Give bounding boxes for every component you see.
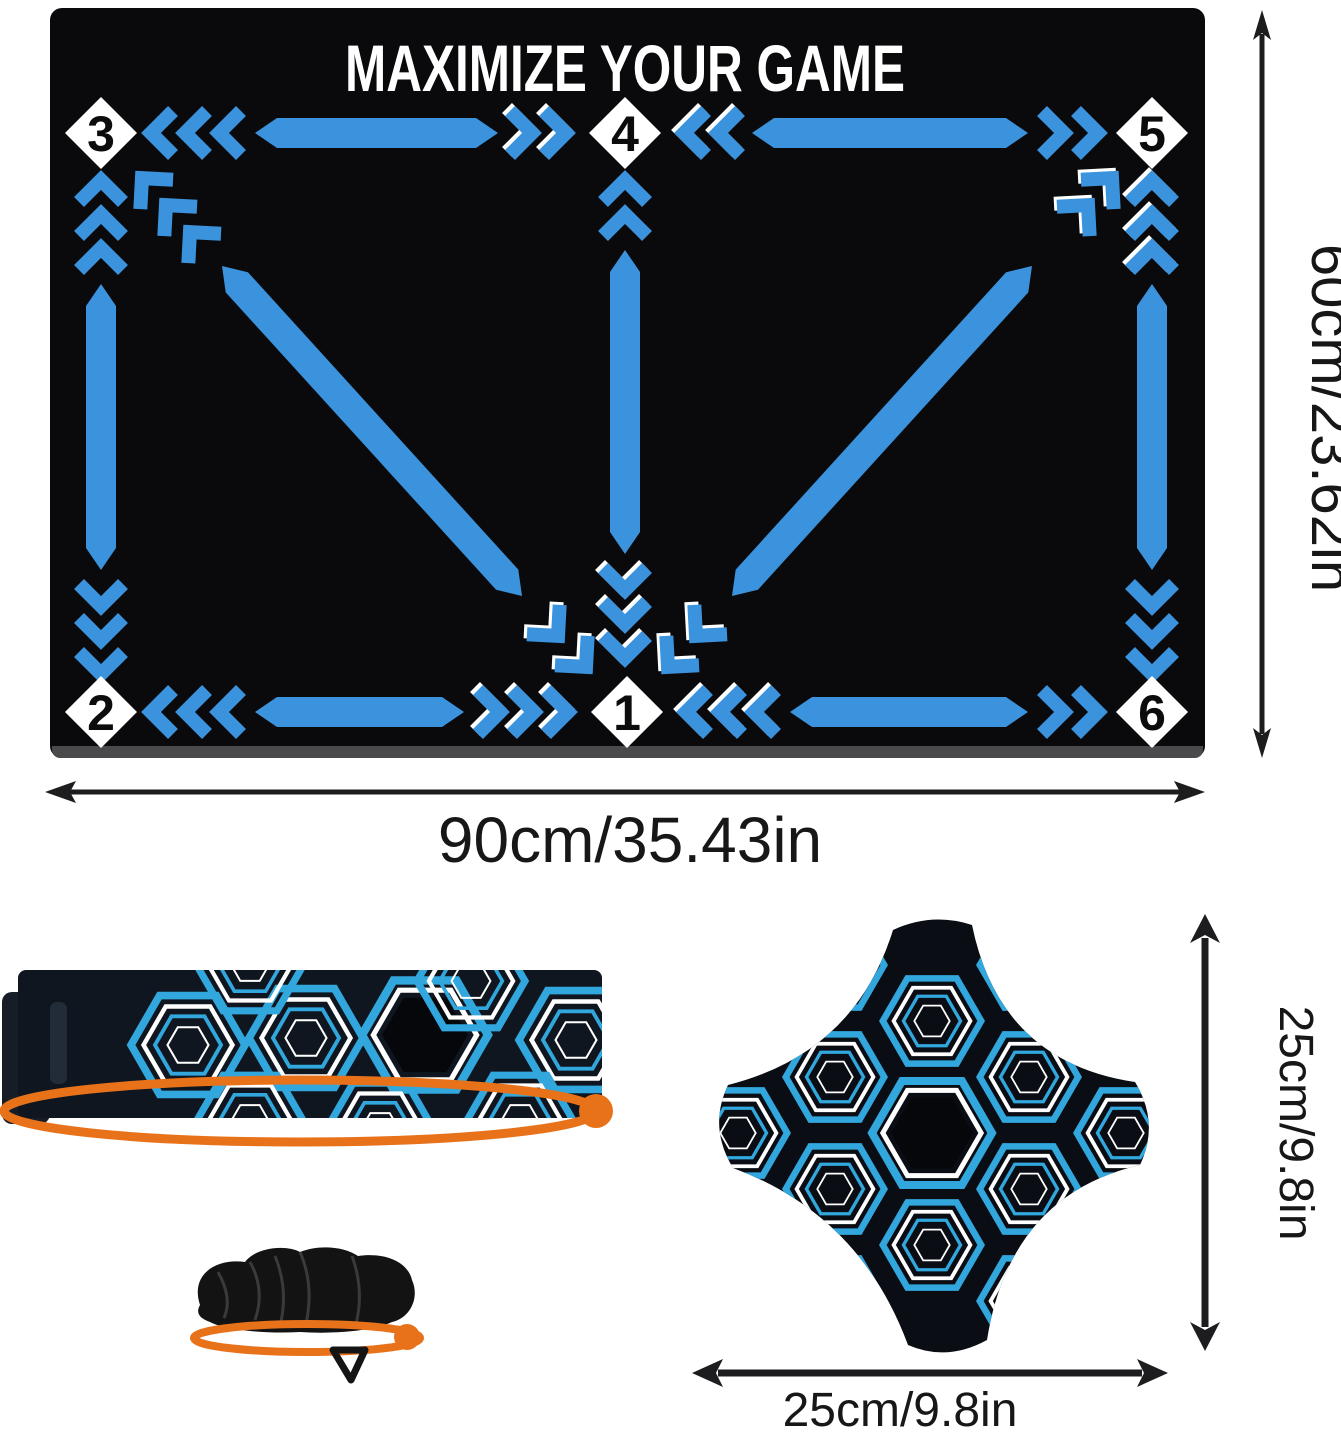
waist-belt-photo	[2, 917, 633, 1177]
station-number-4: 4	[611, 106, 639, 162]
strap-highlight-dot	[394, 1324, 420, 1350]
mat-height-dimension: 60cm/23.62in	[1253, 10, 1341, 758]
pad-width-dimension: 25cm/9.8in	[692, 1359, 1168, 1433]
kick-pad-photo	[689, 920, 1175, 1353]
mat-title: MAXIMIZE YOUR GAME	[345, 31, 905, 105]
rolled-strap-photo	[194, 1247, 420, 1380]
station-number-1: 1	[613, 685, 641, 741]
belt-buckle-slot	[50, 1002, 67, 1084]
pad-height-dimension: 25cm/9.8in	[1190, 914, 1322, 1351]
station-number-6: 6	[1138, 685, 1166, 741]
training-mat-graphic: MAXIMIZE YOUR GAME	[50, 8, 1205, 758]
mat-width-dimension: 90cm/35.43in	[45, 781, 1205, 876]
station-number-5: 5	[1138, 106, 1166, 162]
pad-width-label: 25cm/9.8in	[783, 1384, 1018, 1433]
product-dimension-image: MAXIMIZE YOUR GAME	[0, 0, 1341, 1433]
mat-width-label: 90cm/35.43in	[438, 804, 822, 876]
station-number-2: 2	[87, 685, 115, 741]
mat-bottom-edge	[52, 746, 1203, 758]
pad-height-label: 25cm/9.8in	[1269, 1006, 1322, 1241]
belt-highlight-dot	[579, 1094, 613, 1128]
mat-height-label: 60cm/23.62in	[1299, 244, 1341, 592]
station-number-3: 3	[87, 106, 115, 162]
